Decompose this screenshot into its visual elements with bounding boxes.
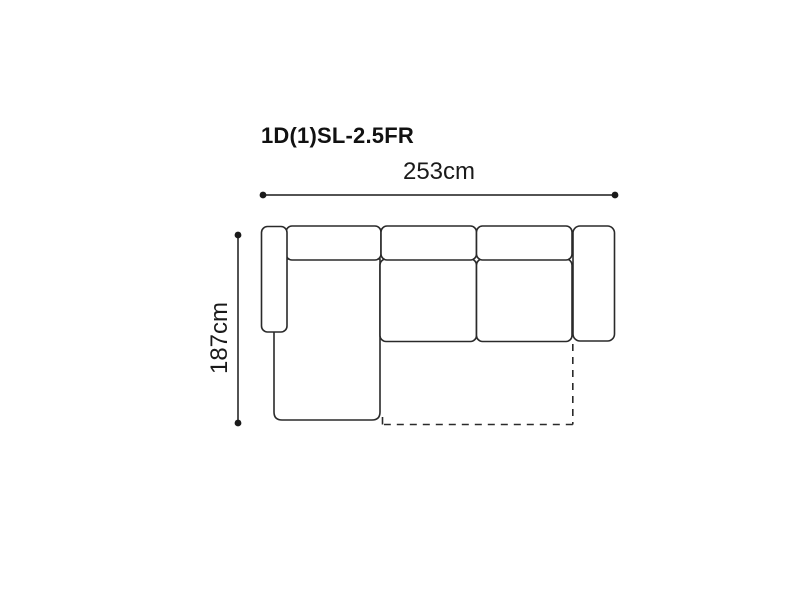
sofa-outline [262,226,615,420]
left-armrest-shape [262,227,288,333]
back-cushion-left [286,226,381,260]
depth-dim-top-dot [235,232,242,239]
back-cushion-middle [381,226,477,260]
seat-cushion-middle [380,259,477,342]
width-dimension-label: 253cm [263,158,615,186]
sofa-dimension-diagram: 1D(1)SL-2.5FR 253cm 187cm [0,0,800,600]
depth-dimension-label: 187cm [206,283,234,393]
seat-cushion-right [477,259,573,342]
foldout-bed-dashed-outline [383,344,573,425]
chaise-seat-shape [274,259,380,420]
depth-dim-bottom-dot [235,420,242,427]
product-code-label: 1D(1)SL-2.5FR [261,124,414,148]
width-dim-left-dot [260,192,267,199]
sofa-top-view-svg [0,0,800,600]
width-dim-right-dot [612,192,619,199]
back-cushion-right [477,226,573,260]
right-armrest-shape [573,226,615,341]
